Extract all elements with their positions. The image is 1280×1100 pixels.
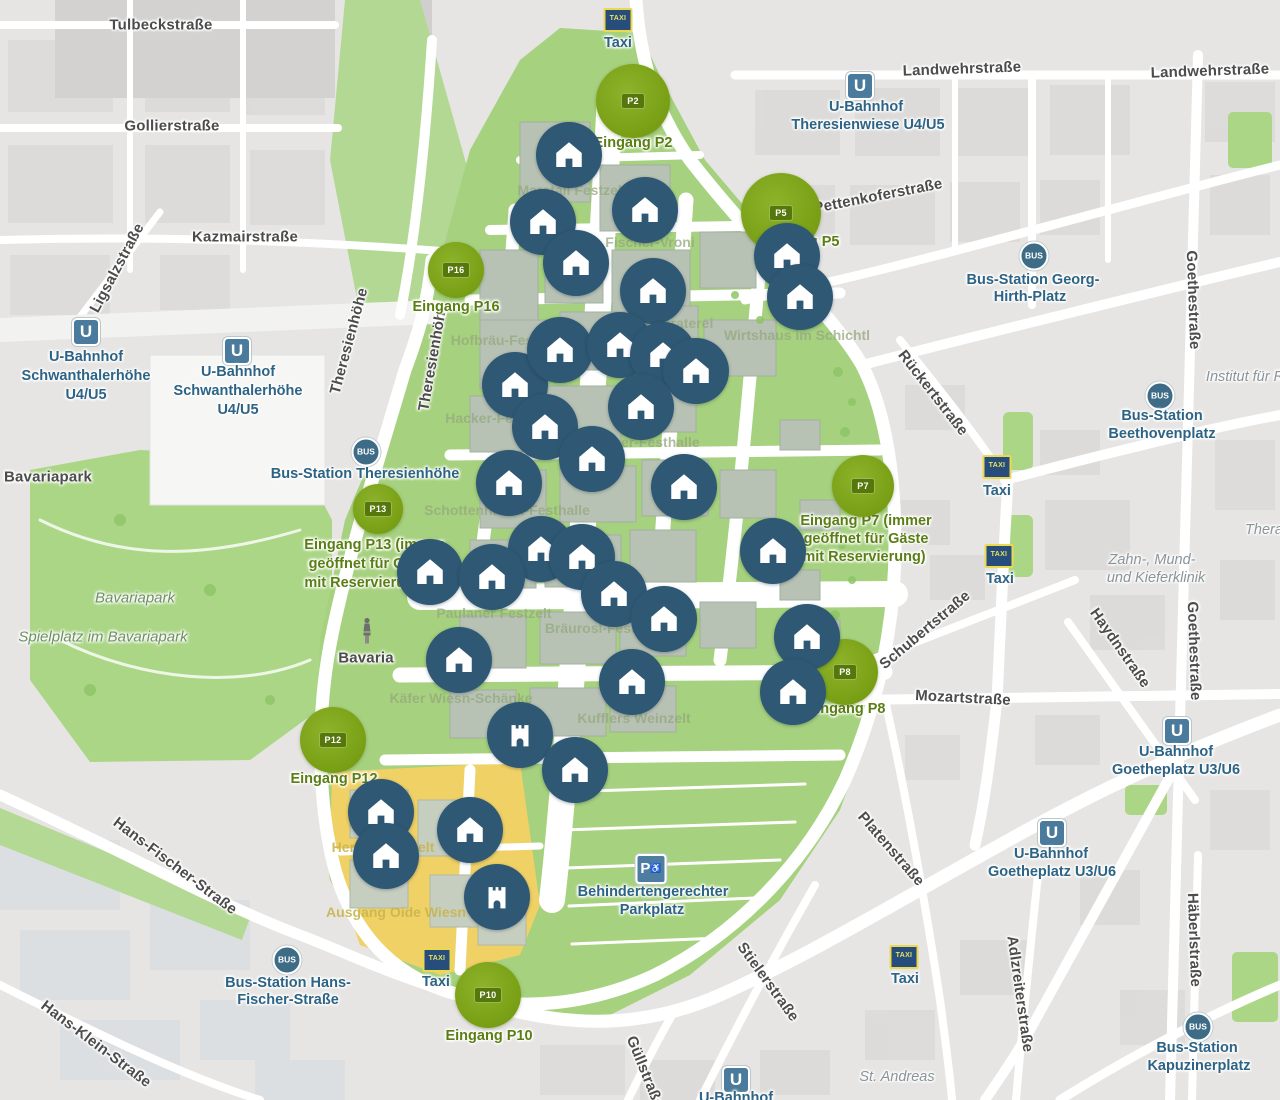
transit-station-label: U-Bahnhof <box>1014 846 1088 862</box>
street-label: Kazmairstraße <box>192 229 298 246</box>
entrance-badge: P13 <box>364 501 393 517</box>
venue-marker-house[interactable] <box>397 539 463 605</box>
transit-station-label: U-Bahnhof <box>49 349 123 365</box>
bus-icon[interactable]: BUS <box>1020 242 1049 271</box>
street-label: Mozartstraße <box>915 687 1012 709</box>
house-icon <box>667 470 701 504</box>
entrance-marker-p2[interactable]: P2 <box>596 64 670 138</box>
transit-station-label: Bus-Station Hans- <box>225 975 351 991</box>
venue-marker-house[interactable] <box>353 823 419 889</box>
house-icon <box>628 193 662 227</box>
house-icon <box>492 466 526 500</box>
entrance-marker-p13[interactable]: P13 <box>353 484 403 534</box>
venue-marker-house[interactable] <box>608 374 674 440</box>
entrance-badge: P8 <box>833 664 857 680</box>
poi-label: St. Andreas <box>859 1069 934 1085</box>
transit-station-label: U-Bahnhof <box>699 1090 773 1100</box>
venue-marker-house[interactable] <box>651 454 717 520</box>
street-label: Goethestraße <box>1184 601 1204 701</box>
entrance-label: Eingang P16 <box>412 299 499 315</box>
parking-p-glyph: P <box>640 860 650 877</box>
bus-icon[interactable]: BUS <box>352 438 381 467</box>
ubahn-icon[interactable]: U <box>72 318 100 346</box>
venue-marker-house[interactable] <box>631 586 697 652</box>
venue-marker-house[interactable] <box>767 264 833 330</box>
street-label: Pettenkoferstraße <box>812 175 944 217</box>
house-icon <box>559 246 593 280</box>
poi-label: Institut für R <box>1206 369 1280 385</box>
transit-station-label: Bus-Station <box>1156 1040 1237 1056</box>
street-label: Hans-Fischer-Straße <box>110 814 240 918</box>
house-icon <box>369 839 403 873</box>
house-icon <box>679 354 713 388</box>
taxi-label: Taxi <box>983 483 1011 499</box>
house-icon <box>413 555 447 589</box>
venue-marker-house[interactable] <box>426 627 492 693</box>
poi-label: Zahn-, Mund- <box>1108 552 1195 568</box>
poi-label: Thera <box>1245 522 1280 538</box>
venue-marker-house[interactable] <box>740 518 806 584</box>
park-name-label: Spielplatz im Bavariapark <box>18 629 187 646</box>
house-icon <box>776 675 810 709</box>
house-icon <box>647 602 681 636</box>
street-label: Bavariapark <box>4 469 92 486</box>
venue-marker-house[interactable] <box>760 659 826 725</box>
bavaria-statue-icon <box>359 617 375 650</box>
venue-marker-house[interactable] <box>559 426 625 492</box>
transit-station-label: Goetheplatz U3/U6 <box>1112 762 1240 778</box>
house-icon <box>756 534 790 568</box>
house-icon <box>575 442 609 476</box>
entrance-badge: P10 <box>474 987 503 1003</box>
house-icon <box>526 205 560 239</box>
house-icon <box>453 813 487 847</box>
ubahn-icon[interactable]: U <box>223 337 251 365</box>
street-label: Theresienhöhe <box>327 286 372 396</box>
street-label: Rückertstraße <box>894 347 971 439</box>
accessible-parking-icon[interactable]: P♿ <box>636 854 667 884</box>
street-label: Tulbeckstraße <box>109 17 212 34</box>
transit-station-label: U-Bahnhof <box>201 364 275 380</box>
house-icon <box>790 620 824 654</box>
bus-icon[interactable]: BUS <box>273 946 302 975</box>
transit-station-label: U4/U5 <box>65 387 106 403</box>
entrance-marker-p10[interactable]: P10 <box>455 962 521 1028</box>
ubahn-icon[interactable]: U <box>846 72 874 100</box>
transit-station-label: Kapuzinerplatz <box>1147 1058 1250 1074</box>
wheelchair-icon: ♿ <box>650 863 661 873</box>
venue-marker-house[interactable] <box>459 544 525 610</box>
venue-marker-house[interactable] <box>476 450 542 516</box>
house-icon <box>783 280 817 314</box>
street-label: Schubertstraße <box>876 587 973 673</box>
taxi-sign[interactable]: TAXI <box>604 8 633 32</box>
entrance-badge: P2 <box>621 93 645 109</box>
taxi-label: Taxi <box>986 571 1014 587</box>
transit-station-label: Hirth-Platz <box>994 289 1067 305</box>
street-label: Stielerstraße <box>734 939 803 1025</box>
street-label: Häberlstraße <box>1184 893 1204 988</box>
street-label: Hans-Klein-Straße <box>38 997 155 1091</box>
taxi-label: Taxi <box>891 971 919 987</box>
castle-icon <box>480 880 514 914</box>
transit-station-label: U4/U5 <box>217 402 258 418</box>
transit-station-label: Bus-Station <box>1121 408 1202 424</box>
house-icon <box>615 665 649 699</box>
street-label: Platenstraße <box>854 809 927 890</box>
venue-marker-house[interactable] <box>536 122 602 188</box>
transit-station-label: Goetheplatz U3/U6 <box>988 864 1116 880</box>
house-icon <box>624 390 658 424</box>
entrance-label: geöffnet für Gäste <box>804 531 929 547</box>
taxi-sign[interactable]: TAXI <box>983 455 1012 479</box>
venue-marker-house[interactable] <box>437 797 503 863</box>
map-canvas[interactable]: TulbeckstraßeGollierstraßeKazmairstraßeL… <box>0 0 1280 1100</box>
taxi-sign[interactable]: TAXI <box>423 948 452 972</box>
street-label: Landwehrstraße <box>1150 60 1269 81</box>
house-icon <box>558 753 592 787</box>
festival-tent-label: Ausgang Oide Wiesn <box>326 904 466 920</box>
venue-marker-house[interactable] <box>542 737 608 803</box>
transit-station-label: Schwanthalerhöhe <box>22 368 151 384</box>
house-icon <box>636 274 670 308</box>
taxi-label: Taxi <box>604 35 632 51</box>
house-icon <box>475 560 509 594</box>
transit-station-label: Fischer-Straße <box>237 992 339 1008</box>
taxi-sign[interactable]: TAXI <box>985 544 1014 568</box>
bus-icon[interactable]: BUS <box>1146 382 1175 411</box>
transit-station-label: Schwanthalerhöhe <box>174 383 303 399</box>
taxi-sign[interactable]: TAXI <box>890 945 919 969</box>
entrance-label: Eingang P10 <box>445 1028 532 1044</box>
bavaria-label: Bavaria <box>338 650 394 667</box>
entrance-badge: P12 <box>319 732 348 748</box>
parking-label: Parkplatz <box>620 902 684 918</box>
transit-station-label: U-Bahnhof <box>829 99 903 115</box>
transit-station-label: U-Bahnhof <box>1139 744 1213 760</box>
street-label: Güllstraße <box>623 1033 667 1100</box>
street-label: Haydnstraße <box>1086 605 1153 691</box>
house-icon <box>543 333 577 367</box>
poi-label: und Kieferklinik <box>1107 570 1205 586</box>
transit-station-label: Bus-Station Georg- <box>967 272 1100 288</box>
street-label: Adlzreiterstraße <box>1003 935 1036 1054</box>
entrance-badge: P16 <box>442 262 471 278</box>
transit-station-label: Theresienwiese U4/U5 <box>791 117 944 133</box>
transit-station-label: Bus-Station Theresienhöhe <box>271 466 460 482</box>
entrance-label: mit Reservierung) <box>802 549 925 565</box>
street-label: Theresienhöhe <box>415 302 451 413</box>
venue-marker-castle[interactable] <box>464 864 530 930</box>
ubahn-icon[interactable]: U <box>1038 819 1066 847</box>
entrance-marker-p12[interactable]: P12 <box>300 707 366 773</box>
taxi-label: Taxi <box>422 974 450 990</box>
street-label: Landwehrstraße <box>902 58 1021 79</box>
house-icon <box>528 410 562 444</box>
house-icon <box>498 368 532 402</box>
ubahn-icon[interactable]: U <box>1163 717 1191 745</box>
entrance-badge: P7 <box>851 478 875 494</box>
entrance-marker-p16[interactable]: P16 <box>428 242 484 298</box>
house-icon <box>442 643 476 677</box>
bus-icon[interactable]: BUS <box>1184 1013 1213 1042</box>
venue-marker-house[interactable] <box>612 177 678 243</box>
castle-icon <box>503 718 537 752</box>
house-icon <box>597 577 631 611</box>
entrance-marker-p7[interactable]: P7 <box>832 455 894 517</box>
venue-marker-house[interactable] <box>599 649 665 715</box>
house-icon <box>552 138 586 172</box>
park-name-label: Bavariapark <box>95 590 175 607</box>
transit-station-label: Beethovenplatz <box>1108 426 1215 442</box>
venue-marker-house[interactable] <box>543 230 609 296</box>
map-overlay-layer: TulbeckstraßeGollierstraßeKazmairstraßeL… <box>0 0 1280 1100</box>
street-label: Gollierstraße <box>124 118 219 135</box>
street-label: Ligsalzstraße <box>86 221 147 316</box>
parking-label: Behindertengerechter <box>578 884 729 900</box>
street-label: Goethestraße <box>1183 250 1203 350</box>
entrance-badge: P5 <box>769 205 793 221</box>
venue-marker-house[interactable] <box>663 338 729 404</box>
venue-marker-house[interactable] <box>527 317 593 383</box>
